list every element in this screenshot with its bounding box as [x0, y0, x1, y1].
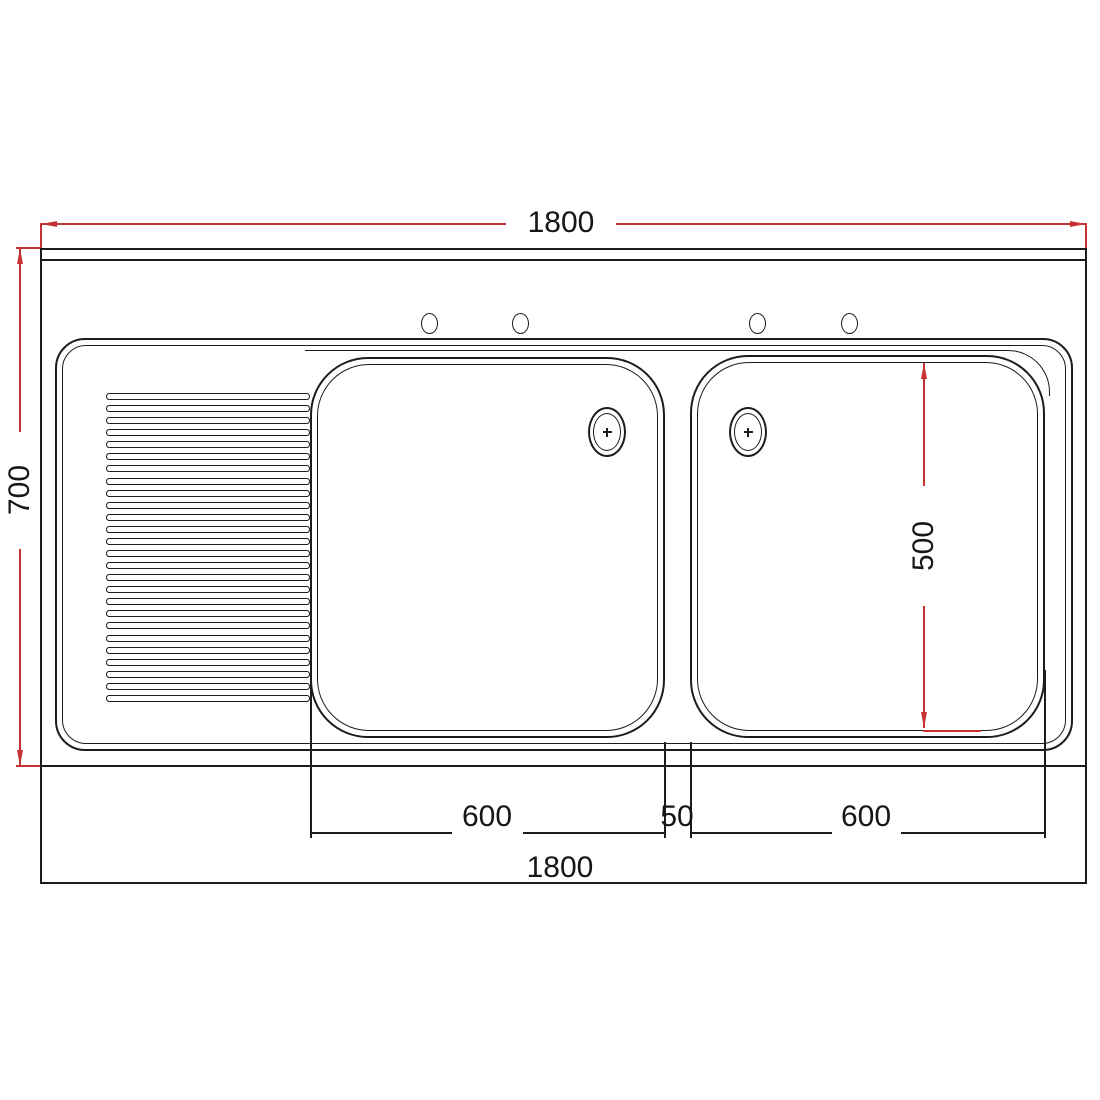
overall-depth-label: 700 — [5, 465, 35, 515]
drainer-rib — [106, 562, 310, 569]
top-dim-line-left — [41, 223, 506, 225]
top-dim-arrow-right — [1070, 221, 1086, 227]
bottom-dim-line-1 — [310, 832, 452, 834]
tap-hole — [512, 313, 529, 334]
bowl-depth-dim-line-top — [923, 363, 925, 486]
drainer-rib — [106, 683, 310, 690]
drainer-rib — [106, 538, 310, 545]
drainer-rib — [106, 598, 310, 605]
bowl-depth-arrow-top — [921, 363, 927, 379]
drainer-rib — [106, 417, 310, 424]
drainer-rib — [106, 671, 310, 678]
drainer-rib — [106, 405, 310, 412]
front-edge-line — [40, 765, 1087, 767]
left-dim-arrow-top — [17, 248, 23, 264]
bowl-depth-stub-bottom — [923, 730, 981, 732]
drainer-rib — [106, 526, 310, 533]
tap-hole — [421, 313, 438, 334]
drainer-rib — [106, 550, 310, 557]
tap-hole — [749, 313, 766, 334]
drainer-rib — [106, 622, 310, 629]
drainer-rib — [106, 659, 310, 666]
left-dim-stub-bottom — [16, 765, 40, 767]
drain-center-mark — [606, 428, 607, 437]
top-dim-arrow-left — [41, 221, 57, 227]
drainer-rib — [106, 453, 310, 460]
bottom-dim-line-3 — [690, 832, 832, 834]
bowl-gap-label: 50 — [660, 802, 693, 832]
right-bowl-width-label: 600 — [841, 802, 891, 832]
drainer-rib — [106, 610, 310, 617]
drainer-rib — [106, 635, 310, 642]
left-dim-stub-top — [16, 247, 40, 249]
left-bowl-width-label: 600 — [462, 802, 512, 832]
bowl-depth-dim-line-bottom — [923, 606, 925, 728]
bottom-dim-line-4 — [901, 832, 1044, 834]
top-width-label: 1800 — [528, 208, 595, 238]
left-dim-arrow-bottom — [17, 750, 23, 766]
top-dim-leader-right — [1085, 223, 1087, 248]
drainer-rib — [106, 586, 310, 593]
top-dim-leader-left — [40, 223, 42, 248]
drainer-rib — [106, 429, 310, 436]
drainer-rib — [106, 502, 310, 509]
sink-technical-drawing: 1800 700 500 600 50 — [0, 0, 1100, 1100]
top-dim-line-right — [616, 223, 1086, 225]
drainer-rib — [106, 695, 310, 702]
bottom-width-label: 1800 — [527, 853, 594, 883]
bowl-depth-label: 500 — [909, 521, 939, 571]
drainer-rib — [106, 514, 310, 521]
bowl-depth-arrow-bottom — [921, 712, 927, 728]
left-dim-line-top — [19, 248, 21, 432]
back-edge-line — [40, 259, 1087, 261]
tap-hole — [841, 313, 858, 334]
drainer-rib — [106, 393, 310, 400]
drainer-rib — [106, 490, 310, 497]
drainer-rib — [106, 478, 310, 485]
drainer-rib — [106, 465, 310, 472]
bottom-dim-ext-left — [310, 670, 312, 838]
left-dim-line-bottom — [19, 549, 21, 766]
drainer-rib — [106, 441, 310, 448]
bottom-dim-line-2 — [523, 832, 664, 834]
drain-center-mark — [747, 428, 748, 437]
drainer-rib — [106, 574, 310, 581]
bottom-dim-ext-right — [1044, 670, 1046, 838]
drainer-rib — [106, 647, 310, 654]
drainer-ribs — [106, 393, 310, 702]
